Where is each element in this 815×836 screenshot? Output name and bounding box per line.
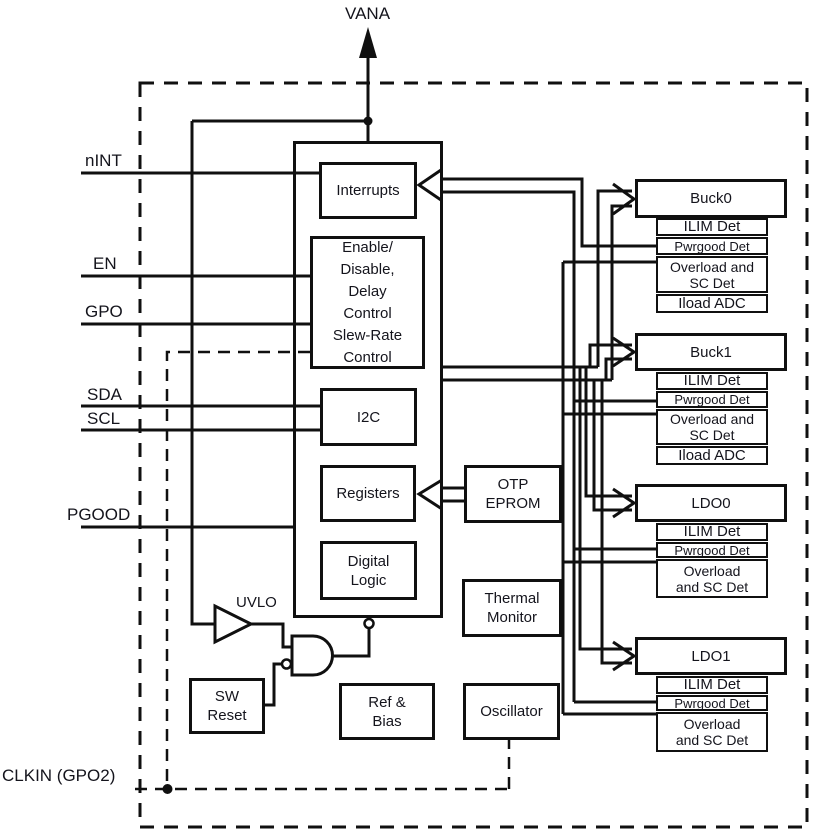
digital-logic-block: Digital Logic	[320, 541, 417, 600]
gate-input-inverter-bubble	[282, 660, 291, 669]
ldo1-block: LDO1	[635, 637, 787, 675]
core-input-inverter-bubble	[365, 619, 374, 628]
pin-label-scl: SCL	[87, 409, 120, 429]
i2c-block: I2C	[320, 388, 417, 446]
thermal-monitor-block: Thermal Monitor	[462, 579, 562, 637]
sw-reset-block: SW Reset	[189, 678, 265, 734]
vana-label: VANA	[345, 4, 390, 24]
uvlo-buffer-symbol	[215, 606, 251, 642]
uvlo-feed-wire	[192, 121, 214, 624]
buck0-overload-sc-det: Overload and SC Det	[656, 256, 768, 293]
ldo1-ilim-det: ILIM Det	[656, 676, 768, 694]
ldo0-block: LDO0	[635, 484, 787, 522]
interrupts-block: Interrupts	[319, 162, 417, 219]
vana-junction-dot	[364, 117, 373, 126]
buck0-block: Buck0	[635, 179, 787, 218]
buck1-pwrgood-det: Pwrgood Det	[656, 391, 768, 408]
buck0-ilim-det: ILIM Det	[656, 218, 768, 236]
ldo0-ilim-det: ILIM Det	[656, 523, 768, 541]
buck0-arrowhead	[613, 184, 634, 214]
pin-label-clkin: CLKIN (GPO2)	[2, 766, 115, 786]
buck1-iload-adc: Iload ADC	[656, 446, 768, 465]
pin-label-pgood: PGOOD	[67, 505, 130, 525]
buck0-iload-adc: Iload ADC	[656, 294, 768, 313]
clkin-junction-dot	[163, 784, 173, 794]
oscillator-block: Oscillator	[463, 683, 560, 740]
pin-label-gpo: GPO	[85, 302, 123, 322]
block-diagram: VANA nINT EN GPO SDA SCL PGOOD CLKIN (GP…	[0, 0, 815, 836]
nand-gate-symbol	[292, 636, 333, 675]
ldo1-pwrgood-det: Pwrgood Det	[656, 695, 768, 711]
buck1-ilim-det: ILIM Det	[656, 372, 768, 390]
buck1-arrowhead	[613, 338, 634, 366]
pin-label-sda: SDA	[87, 385, 122, 405]
vana-arrow	[359, 27, 377, 58]
pin-label-nint: nINT	[85, 151, 122, 171]
ldo0-arrowhead	[613, 489, 634, 517]
uvlo-label: UVLO	[236, 594, 277, 611]
ref-bias-block: Ref & Bias	[339, 683, 435, 740]
registers-block: Registers	[320, 465, 416, 522]
enable-control-block: Enable/ Disable, Delay Control Slew-Rate…	[310, 236, 425, 369]
buck1-block: Buck1	[635, 333, 787, 371]
buck0-pwrgood-det: Pwrgood Det	[656, 237, 768, 255]
ldo0-pwrgood-det: Pwrgood Det	[656, 542, 768, 558]
buck1-overload-sc-det: Overload and SC Det	[656, 409, 768, 445]
otp-eprom-block: OTP EPROM	[464, 465, 562, 523]
ldo1-overload-sc-det: Overload and SC Det	[656, 712, 768, 752]
pin-label-en: EN	[93, 254, 117, 274]
ldo1-arrowhead	[613, 642, 634, 670]
ldo0-overload-sc-det: Overload and SC Det	[656, 559, 768, 598]
